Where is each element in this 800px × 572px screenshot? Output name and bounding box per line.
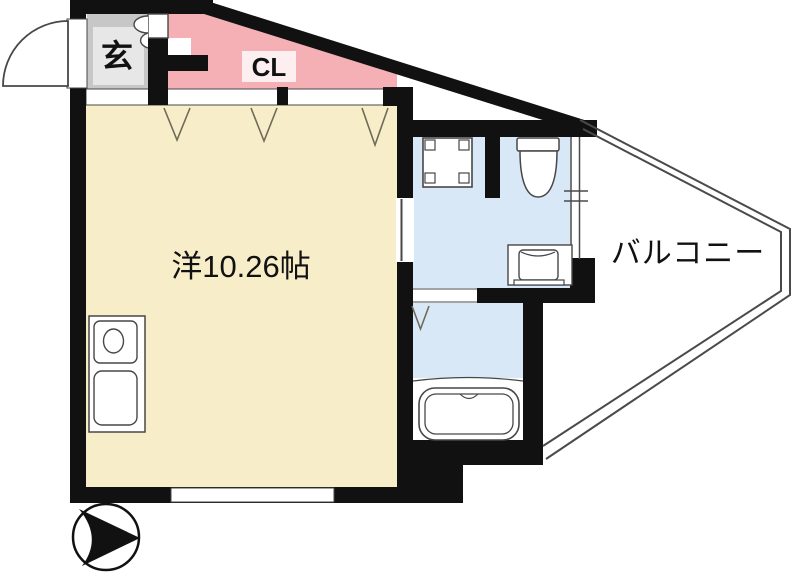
- entrance-label: 玄: [101, 38, 133, 74]
- wall-room-right-upper: [397, 87, 413, 198]
- wall-bathroom-top: [397, 120, 597, 137]
- shoe-cabinet: [148, 14, 168, 38]
- toilet-tank: [517, 138, 559, 151]
- floor-plan: 玄 CL 洋10.26帖 バルコニー: [0, 0, 800, 572]
- compass-icon: [73, 504, 140, 570]
- washer-pan-corner-bl: [425, 173, 435, 183]
- balcony-label: バルコニー: [611, 237, 765, 270]
- closet-track-strip: [86, 89, 397, 105]
- wall-entrance-divider-v: [148, 38, 168, 105]
- wall-closet-post: [277, 87, 288, 105]
- wall-closet-post-right: [383, 87, 397, 106]
- washbasin-base: [514, 280, 564, 285]
- bath-door-opening: [413, 288, 477, 303]
- wall-entrance-divider-h: [168, 55, 208, 71]
- washer-pan-corner-br: [459, 173, 469, 183]
- washbasin-icon: [508, 245, 572, 285]
- bathtub-icon: [419, 388, 519, 440]
- closet-label: CL: [252, 52, 287, 82]
- wet-area-lower-floor: [413, 303, 523, 380]
- kitchen-basin: [94, 371, 137, 425]
- washroom-slide-opening: [396, 198, 414, 262]
- room-label: 洋10.26帖: [171, 249, 311, 284]
- closet-corner-notch: [168, 38, 191, 55]
- wall-top: [70, 0, 213, 14]
- wall-bath-right: [523, 303, 543, 447]
- washbasin-bowl: [519, 250, 558, 280]
- washer-pan-corner-tl: [425, 140, 435, 150]
- window-bottom: [171, 488, 334, 502]
- kitchen-sink-icon: [89, 316, 145, 432]
- entrance-opening: [67, 19, 87, 88]
- washer-pan-icon: [423, 138, 472, 187]
- washer-pan-corner-tr: [459, 140, 469, 150]
- door-swing-icon: [3, 21, 68, 86]
- wall-toilet-divider: [485, 137, 500, 198]
- kitchen-stove: [94, 321, 137, 363]
- wall-step-block: [397, 450, 463, 503]
- floor-plan-page: 玄 CL 洋10.26帖 バルコニー: [0, 0, 800, 572]
- bathtub-inner: [425, 394, 513, 434]
- wall-corner-east: [570, 258, 595, 303]
